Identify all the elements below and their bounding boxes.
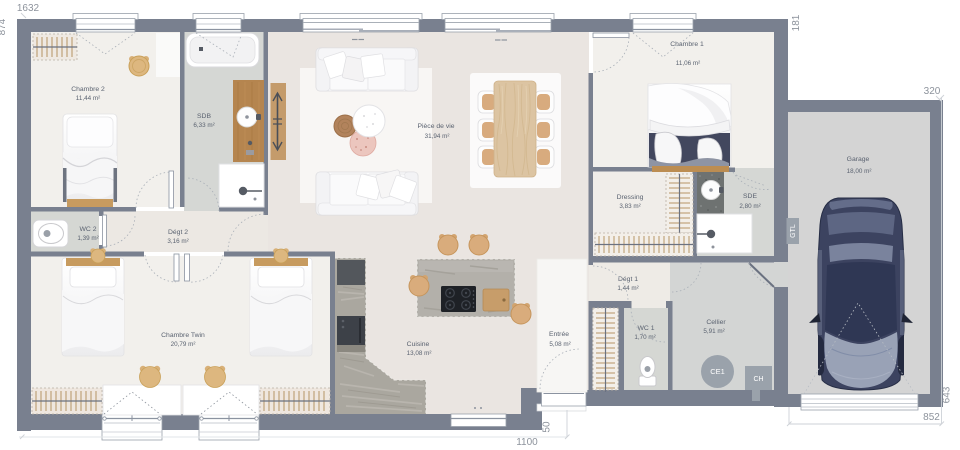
svg-text:Dressing: Dressing <box>617 194 644 201</box>
svg-text:Entrée: Entrée <box>549 331 569 338</box>
svg-text:643: 643 <box>942 386 953 403</box>
svg-text:11,06 m²: 11,06 m² <box>676 60 700 67</box>
svg-text:2,80 m²: 2,80 m² <box>739 203 760 210</box>
svg-text:CH: CH <box>753 376 763 383</box>
svg-text:CE1: CE1 <box>710 367 725 376</box>
svg-text:20,79 m²: 20,79 m² <box>171 341 196 348</box>
svg-text:1,44 m²: 1,44 m² <box>617 285 638 292</box>
svg-text:31,94 m²: 31,94 m² <box>425 133 450 140</box>
svg-text:5,08 m²: 5,08 m² <box>549 341 570 348</box>
svg-text:Cuisine: Cuisine <box>407 341 430 348</box>
svg-text:Pièce de vie: Pièce de vie <box>417 123 454 130</box>
svg-text:Chambre 1: Chambre 1 <box>670 41 704 48</box>
svg-text:181: 181 <box>791 14 802 31</box>
svg-text:Dégt 2: Dégt 2 <box>168 229 188 236</box>
svg-text:1100: 1100 <box>516 437 538 448</box>
svg-text:SDE: SDE <box>743 193 757 200</box>
svg-text:GTL: GTL <box>790 224 797 238</box>
svg-text:Garage: Garage <box>847 156 870 163</box>
svg-text:13,08 m²: 13,08 m² <box>407 350 432 357</box>
svg-text:50: 50 <box>542 421 553 433</box>
svg-text:3,16 m²: 3,16 m² <box>167 238 188 245</box>
svg-text:SDB: SDB <box>197 113 211 120</box>
svg-text:Chambre 2: Chambre 2 <box>71 86 105 93</box>
svg-text:3,83 m²: 3,83 m² <box>619 203 640 210</box>
svg-text:6,33 m²: 6,33 m² <box>193 122 214 129</box>
svg-text:852: 852 <box>923 412 940 423</box>
svg-text:18,00 m²: 18,00 m² <box>847 168 872 175</box>
svg-text:1632: 1632 <box>17 3 40 14</box>
svg-text:320: 320 <box>924 86 941 97</box>
svg-text:5,91 m²: 5,91 m² <box>703 328 724 335</box>
svg-text:11,44 m²: 11,44 m² <box>76 95 100 102</box>
svg-text:WC 2: WC 2 <box>80 226 97 233</box>
svg-text:874: 874 <box>0 18 8 35</box>
svg-text:Chambre Twin: Chambre Twin <box>161 332 205 339</box>
svg-text:Cellier: Cellier <box>706 319 726 326</box>
svg-text:1,39 m²: 1,39 m² <box>77 235 98 242</box>
